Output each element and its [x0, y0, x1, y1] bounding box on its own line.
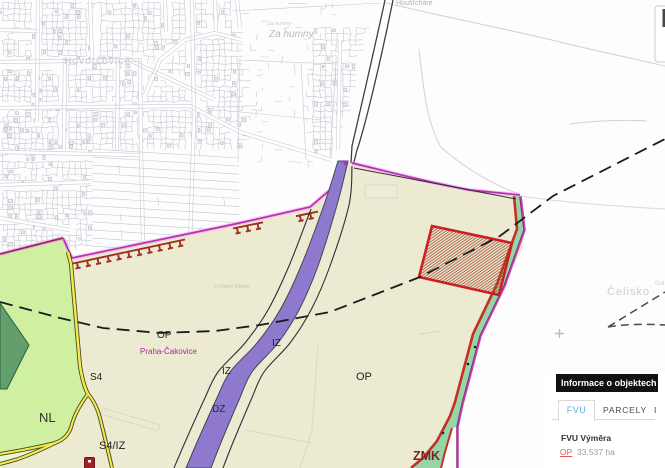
svg-text:IZ: IZ [272, 338, 281, 349]
svg-text:Houšťcháre: Houšťcháre [396, 0, 433, 7]
svg-text:S4/IZ: S4/IZ [99, 440, 126, 452]
svg-text:Hovorčovice: Hovorčovice [64, 56, 131, 67]
svg-text:Za humny: Za humny [268, 29, 314, 40]
svg-text:DZ: DZ [212, 404, 225, 415]
svg-text:U Hlavní Silnice: U Hlavní Silnice [214, 284, 250, 290]
svg-text:OP: OP [157, 330, 172, 341]
svg-text:Gol: Gol [655, 281, 664, 287]
svg-text:S4: S4 [90, 372, 103, 383]
svg-text:IZ: IZ [222, 366, 231, 377]
svg-text:Za humny: Za humny [266, 21, 293, 27]
svg-text:ZMK: ZMK [413, 449, 440, 463]
svg-text:NL: NL [39, 410, 56, 425]
svg-text:OP: OP [356, 371, 372, 383]
svg-text:Čelisko: Čelisko [607, 285, 650, 298]
svg-text:Praha-Čakovice: Praha-Čakovice [140, 347, 197, 356]
